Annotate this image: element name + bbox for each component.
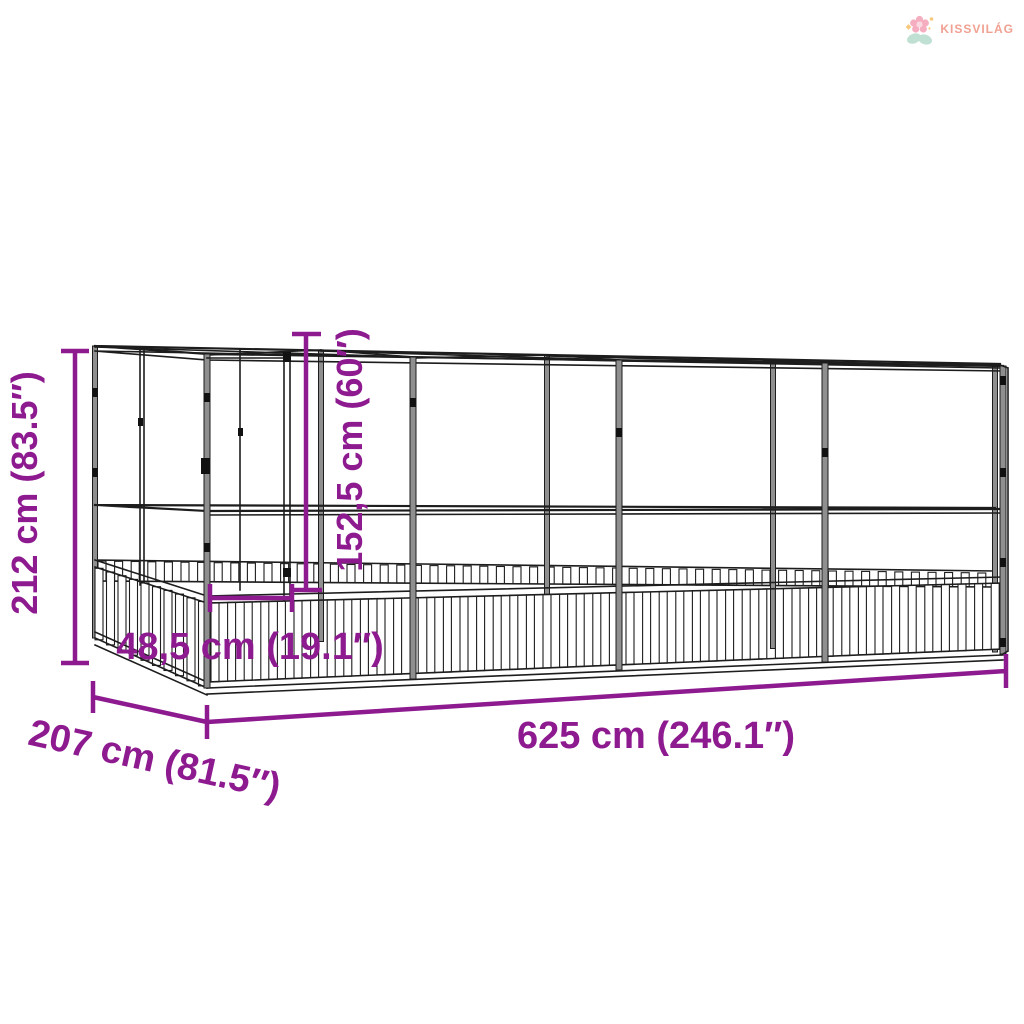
dimension-overall-height: 212 cm (83.5″): [4, 351, 89, 663]
dimension-label-height: 212 cm (83.5″): [4, 371, 45, 614]
dimension-door-height: 152,5 cm (60″): [292, 328, 370, 590]
dimension-line-height: [61, 351, 89, 663]
aviary-wireframe: 212 cm (83.5″) 152,5 cm (60″) 48,5 cm (1…: [0, 0, 1024, 1024]
dimension-label-door-height: 152,5 cm (60″): [329, 328, 370, 571]
dimension-overall-depth: 207 cm (81.5″): [25, 681, 285, 809]
dimension-label-length: 625 cm (246.1″): [517, 715, 795, 757]
dimension-label-door-width: 48,5 cm (19.1″): [116, 626, 383, 668]
mid-rails: [95, 505, 1003, 515]
product-dimension-diagram: KISSVILÁG: [0, 0, 1024, 1024]
dimension-label-depth: 207 cm (81.5″): [25, 712, 285, 809]
door-handle: [201, 458, 210, 474]
dimension-line-door-height: [292, 334, 322, 590]
